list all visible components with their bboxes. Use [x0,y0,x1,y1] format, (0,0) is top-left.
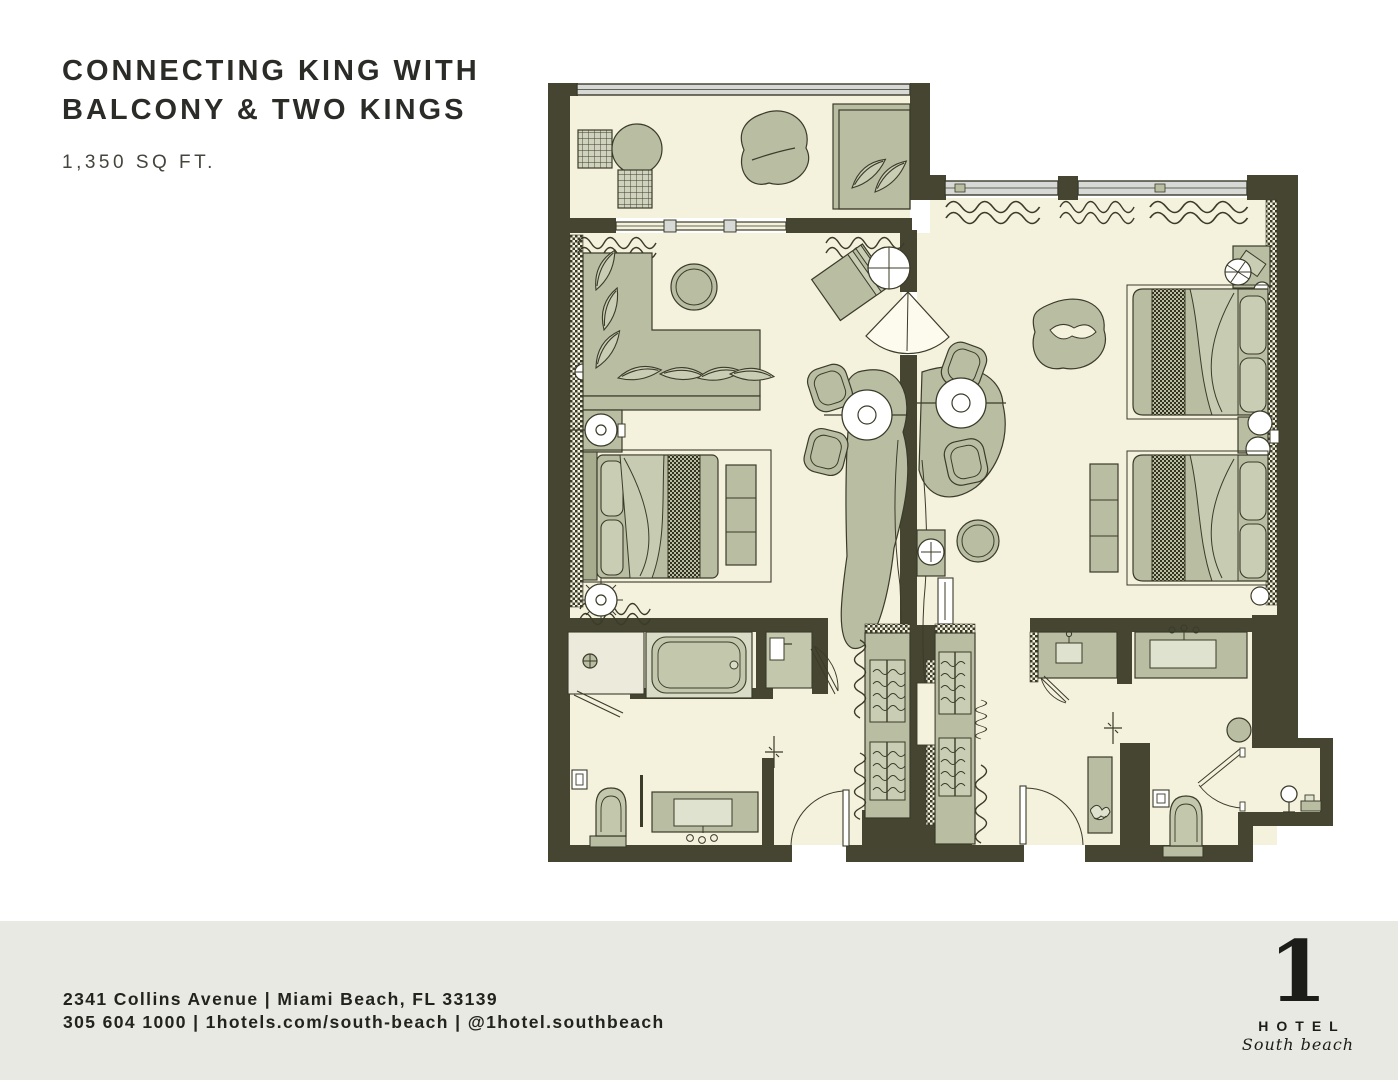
balcony-daybed [833,104,910,209]
hotel-address: 2341 Collins Avenue | Miami Beach, FL 33… [63,988,665,1011]
king-bed-upper [1127,285,1268,419]
balcony-sliding-door [616,220,786,232]
side-lamp [868,247,910,289]
blanket-runner [668,455,700,578]
bathtub [646,632,752,698]
vanity-large [1135,625,1247,678]
ledge-with-plant [1088,757,1112,833]
blanket-runner [1152,289,1185,415]
closet-left [865,633,910,818]
king-bed-lower [1127,451,1268,585]
pouf [671,264,717,310]
balcony-chair [618,170,652,208]
closet-right [935,633,975,844]
pillow [1240,462,1266,520]
bed-bench [1090,464,1118,572]
logo-numeral: 1 [1238,930,1358,1014]
balcony-chair [578,130,612,168]
pillow [1240,296,1266,354]
blanket-runner [1152,455,1185,581]
pillow [1240,358,1266,412]
balcony-plant [741,111,808,184]
wall-niche [917,683,935,745]
pillow [601,520,623,575]
hotel-logo: 1 HOTEL South beach [1238,930,1358,1054]
page-title-line1: CONNECTING KING WITH [62,52,480,91]
hotel-contact: 305 604 1000 | 1hotels.com/south-beach |… [63,1011,665,1034]
page-title-line2: BALCONY & TWO KINGS [62,91,480,130]
logo-hotel-word: HOTEL [1238,1018,1358,1034]
pillow [601,461,623,516]
pillow [1240,524,1266,578]
stool [1227,718,1251,742]
logo-location-script: South beach [1238,1035,1358,1054]
page-header: CONNECTING KING WITH BALCONY & TWO KINGS… [62,52,480,174]
balcony-table [612,124,662,174]
towel-bar [572,770,587,789]
curtain-strip [570,235,583,607]
square-footage: 1,350 SQ FT. [62,152,480,174]
bed-bench [726,465,756,565]
paper-holder [1153,790,1169,807]
side-table [957,520,999,562]
footer: 2341 Collins Avenue | Miami Beach, FL 33… [63,988,665,1034]
wall-sconce [1251,587,1269,605]
